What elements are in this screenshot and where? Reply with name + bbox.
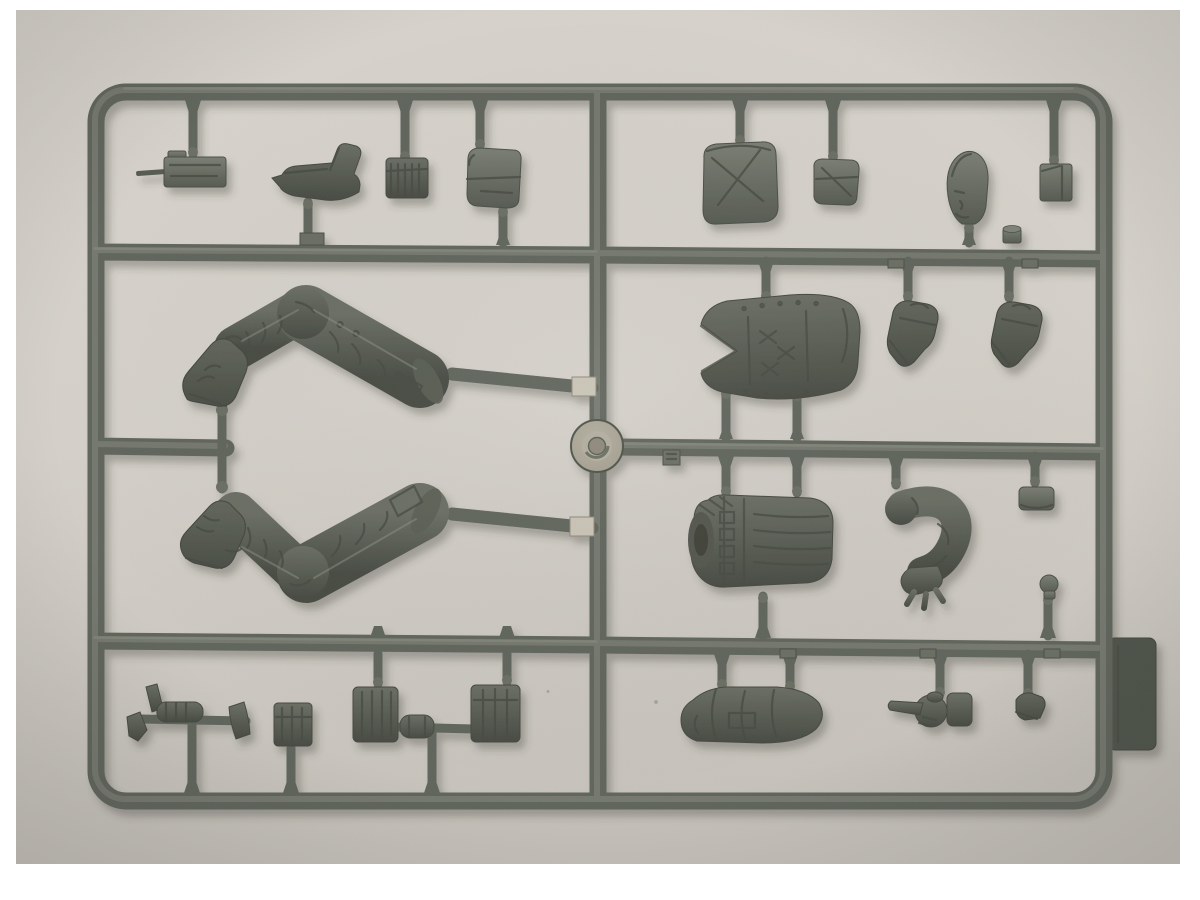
photo-of-model-sprue [0,0,1200,900]
sprue-photo [0,0,1200,900]
photo-grain [16,10,1180,864]
